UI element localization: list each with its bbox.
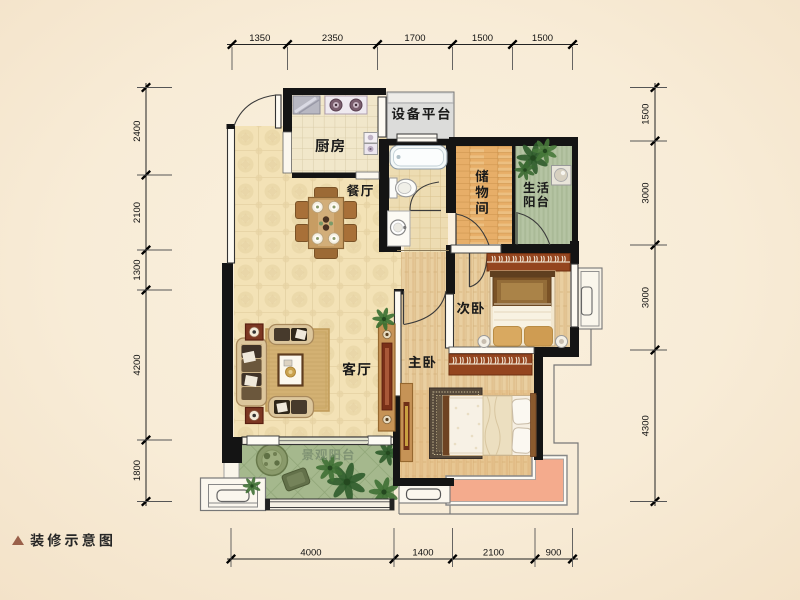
svg-text:3000: 3000 xyxy=(641,182,652,203)
svg-text:1300: 1300 xyxy=(132,259,143,280)
svg-text:4000: 4000 xyxy=(300,548,321,559)
svg-text:4200: 4200 xyxy=(132,354,143,375)
svg-text:2100: 2100 xyxy=(483,548,504,559)
svg-text:3000: 3000 xyxy=(641,287,652,308)
svg-text:2400: 2400 xyxy=(132,121,143,142)
svg-text:1500: 1500 xyxy=(472,33,493,44)
svg-text:900: 900 xyxy=(546,548,562,559)
svg-text:1350: 1350 xyxy=(249,33,270,44)
svg-text:1400: 1400 xyxy=(412,548,433,559)
svg-text:2100: 2100 xyxy=(132,202,143,223)
svg-text:1500: 1500 xyxy=(641,104,652,125)
svg-text:4300: 4300 xyxy=(641,415,652,436)
svg-text:1700: 1700 xyxy=(404,33,425,44)
svg-text:2350: 2350 xyxy=(322,33,343,44)
svg-text:1500: 1500 xyxy=(532,33,553,44)
svg-text:1800: 1800 xyxy=(132,460,143,481)
